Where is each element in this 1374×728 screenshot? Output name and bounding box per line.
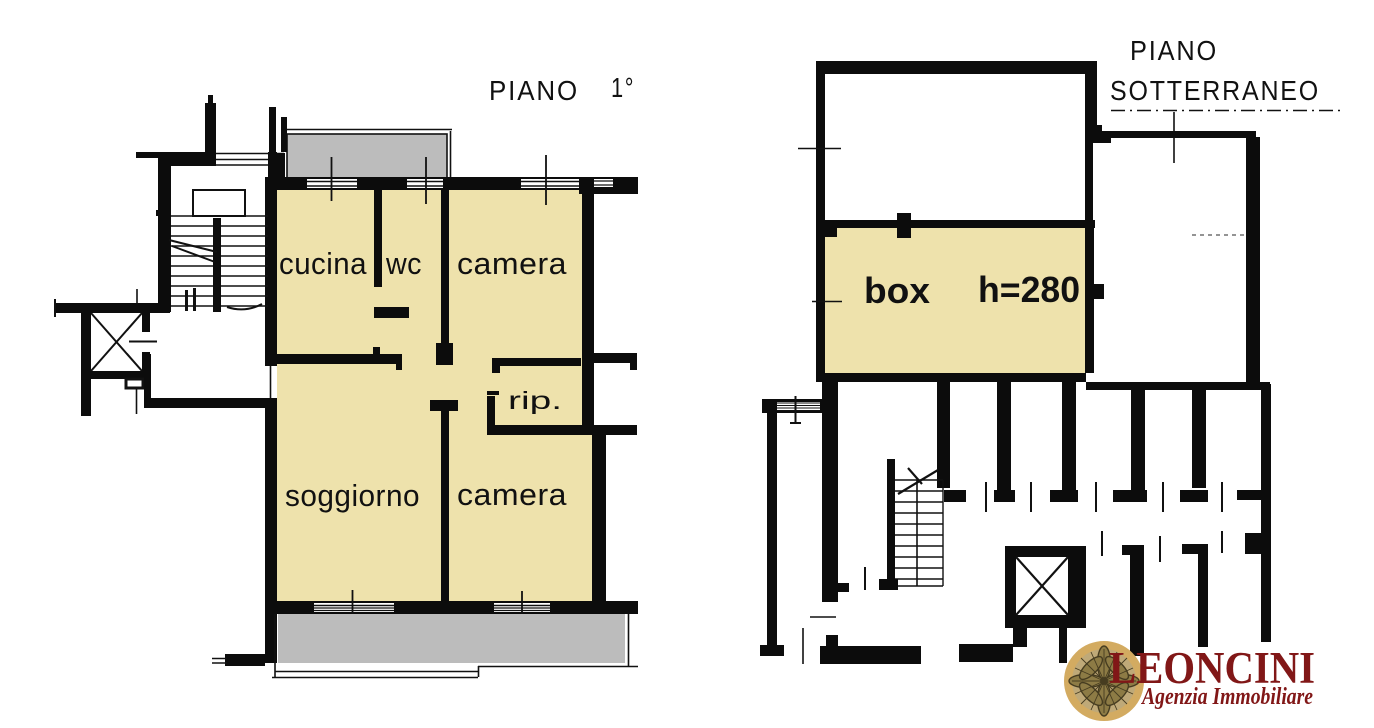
svg-text:wc: wc: [385, 246, 422, 281]
svg-text:rip.: rip.: [508, 387, 562, 415]
svg-text:SOTTERRANEO: SOTTERRANEO: [1110, 75, 1320, 106]
svg-text:Agenzia Immobiliare: Agenzia Immobiliare: [1140, 684, 1313, 710]
svg-text:1°: 1°: [611, 72, 635, 103]
svg-text:PIANO: PIANO: [489, 75, 579, 106]
svg-text:box: box: [864, 270, 930, 311]
svg-text:cucina: cucina: [279, 246, 367, 281]
svg-text:soggiorno: soggiorno: [285, 478, 420, 513]
svg-text:PIANO: PIANO: [1130, 35, 1218, 66]
svg-text:h=280: h=280: [978, 269, 1080, 310]
svg-text:camera: camera: [457, 477, 567, 512]
svg-text:camera: camera: [457, 246, 567, 281]
